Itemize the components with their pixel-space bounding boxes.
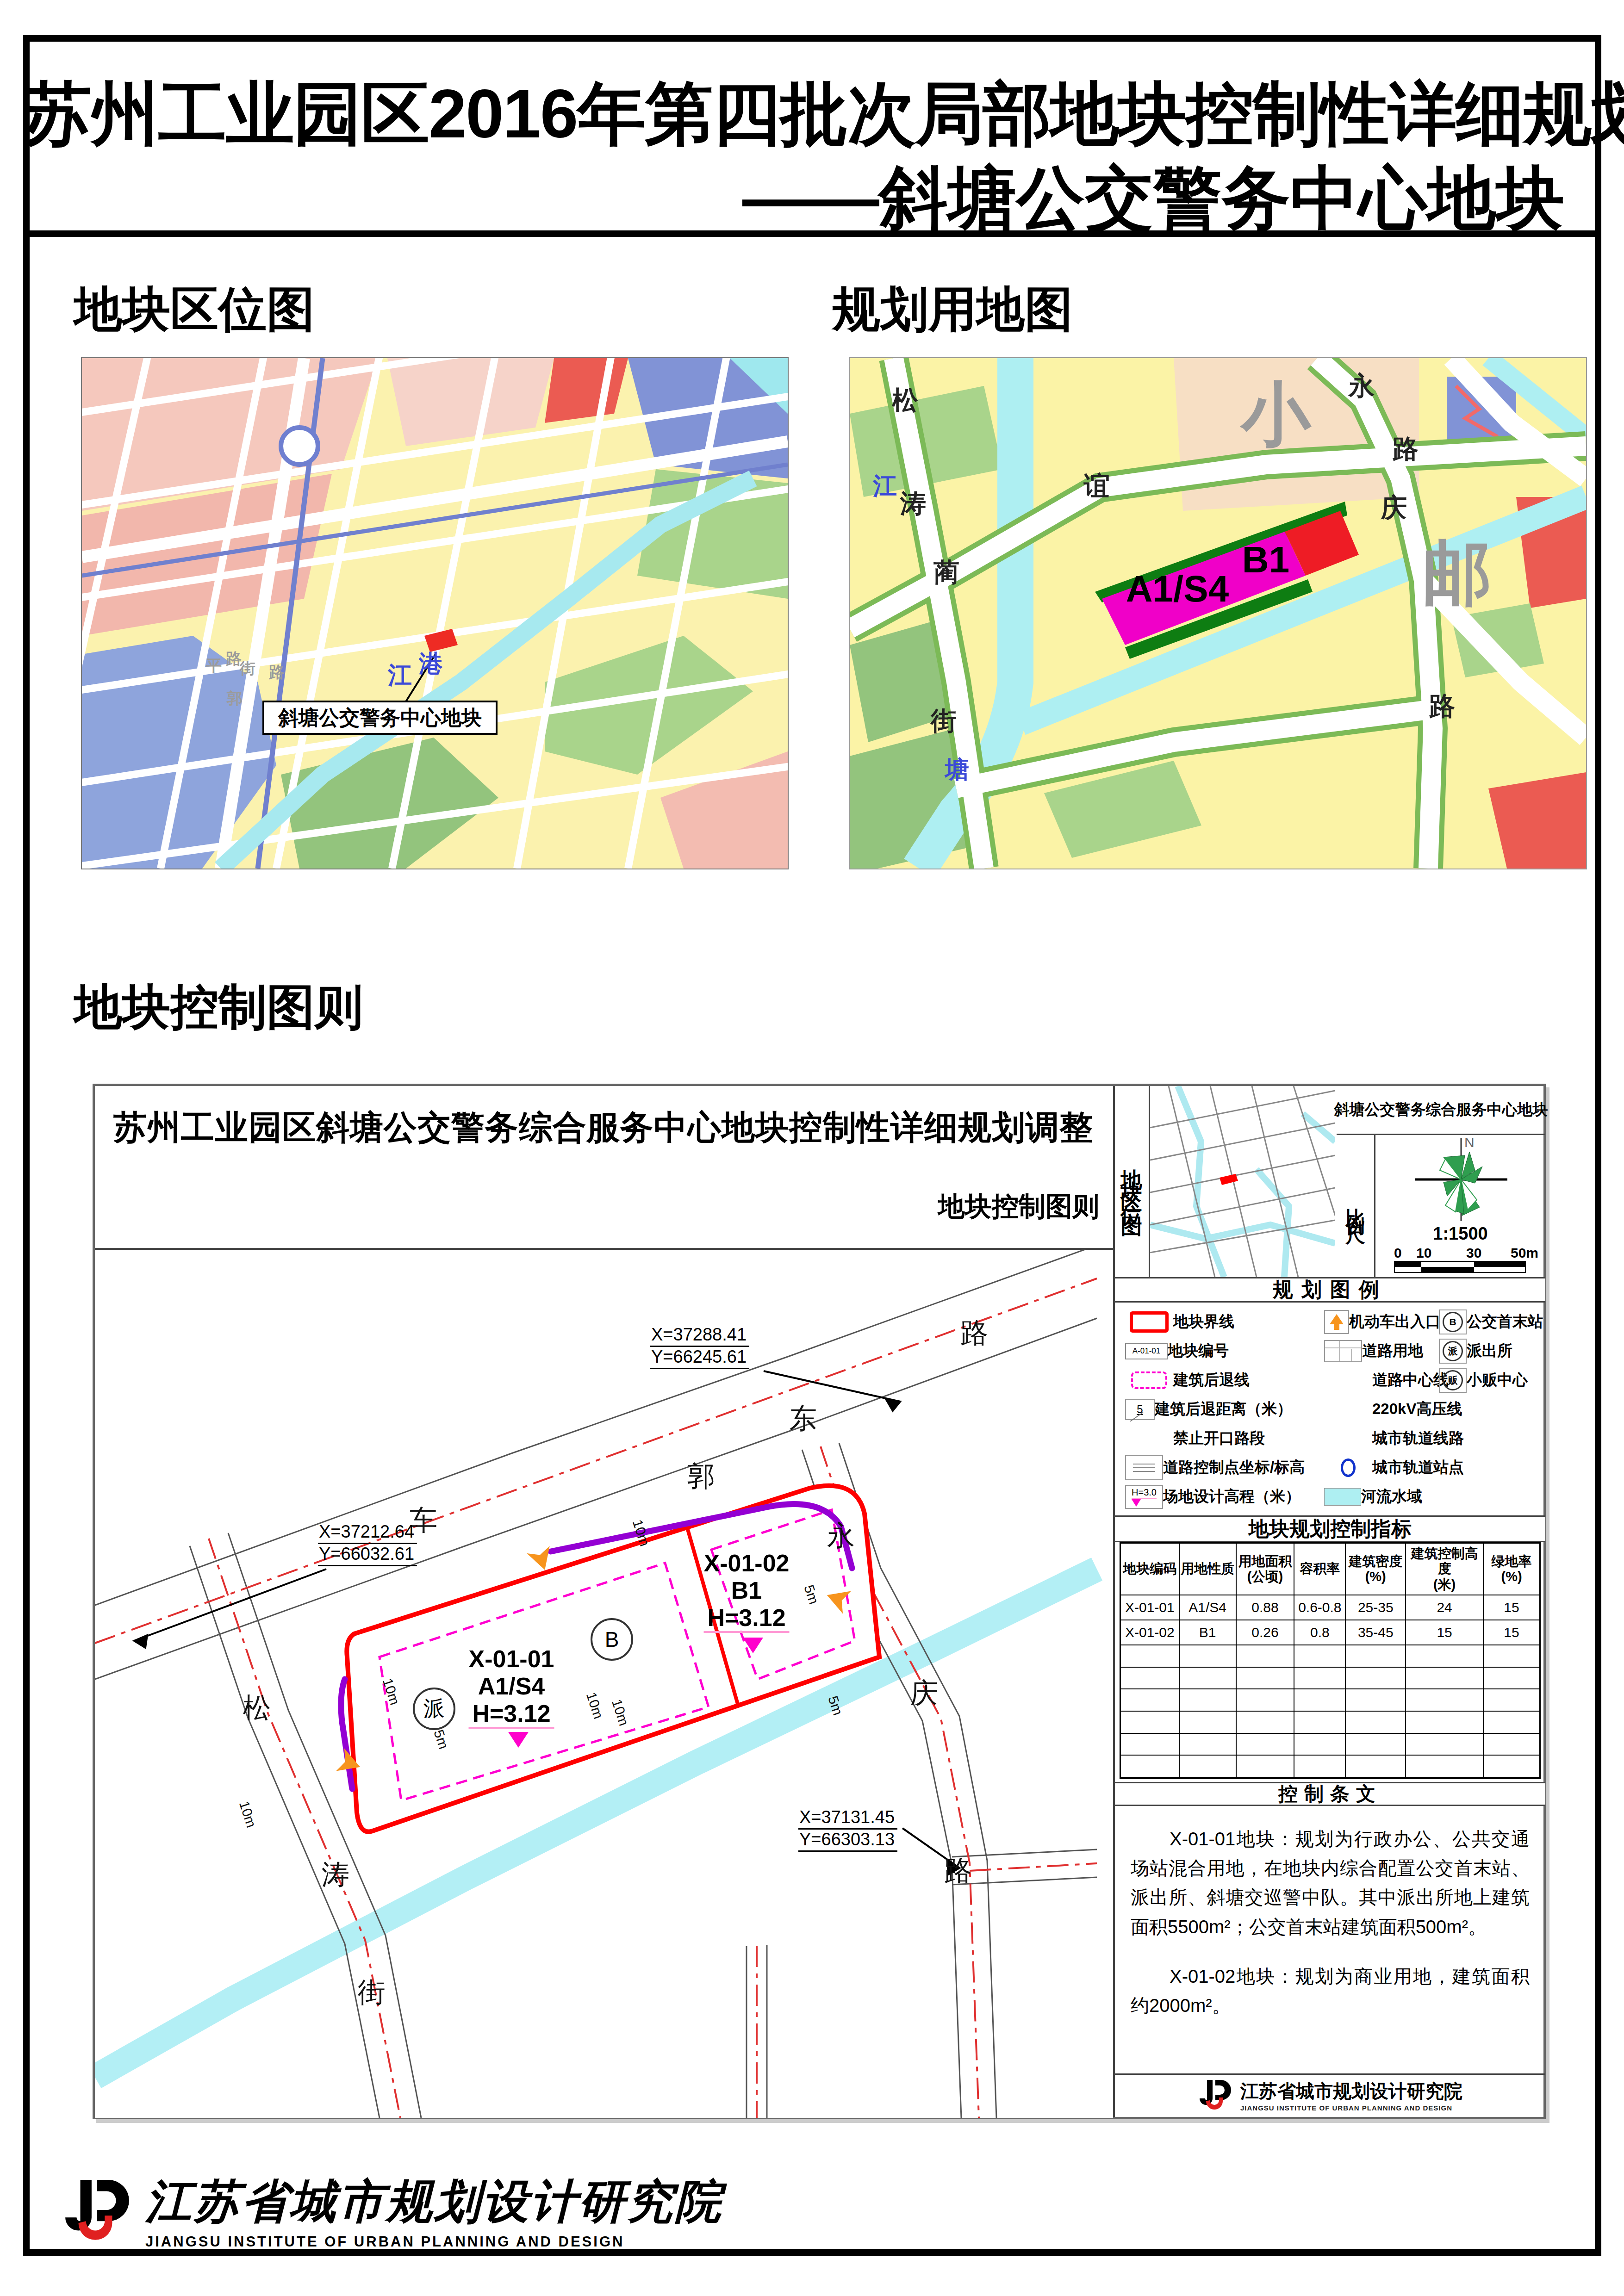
footer-logo-icon <box>59 2176 133 2246</box>
plot2-code: X-01-02 <box>704 1550 790 1577</box>
section-label-landuse-map: 规划用地图 <box>832 278 1073 342</box>
provision-paragraph-1: X-01-01地块：规划为行政办公、公共交通场站混合用地，在地块内综合配置公交首… <box>1131 1824 1530 1942</box>
panel-top-row: 地块区位图 <box>1115 1086 1545 1277</box>
location-map: 平路街路郭江港 斜塘公交警务中心地块 <box>81 357 789 869</box>
legend-item-label: 地块界线 <box>1173 1311 1234 1332</box>
indicators-title: 地块规划控制指标 <box>1115 1515 1545 1542</box>
table-cell: 35-45 <box>1346 1620 1406 1645</box>
map-road-name: 路 <box>226 648 242 670</box>
landuse-label: 小 <box>1241 369 1311 462</box>
legend-item-label: 禁止开口路段 <box>1173 1428 1265 1449</box>
footer-name-cn: 江苏省城市规划设计研究院 <box>145 2171 723 2234</box>
scale-tick: 10 <box>1416 1245 1431 1261</box>
location-callout-label: 斜塘公交警务中心地块 <box>262 701 498 735</box>
drawing-road-name: 郭 <box>687 1458 715 1496</box>
legend-item-label: 地块编号 <box>1168 1340 1229 1361</box>
plot1-height: H=3.12 <box>469 1700 554 1729</box>
table-cell: 15 <box>1406 1620 1484 1645</box>
legend-item-label: 220kV高压线 <box>1372 1399 1462 1420</box>
drawing-road-name: 路 <box>960 1315 988 1352</box>
landuse-label: 街 <box>931 704 957 739</box>
scale-bar <box>1394 1261 1526 1273</box>
legend-symbol-icon <box>1324 1379 1372 1381</box>
legend-item-label: 河流水域 <box>1361 1486 1422 1507</box>
legend-column-3: B 公交首末站 派 派出所 贩 小贩中心 <box>1439 1307 1543 1395</box>
compass-area: N 1:1500 0103050m <box>1375 1135 1545 1277</box>
coord3-x: X=37131.45 <box>798 1807 897 1830</box>
legend-symbol-icon <box>1324 1488 1361 1506</box>
footer-name-en: JIANGSU INSTITUTE OF URBAN PLANNING AND … <box>145 2234 723 2250</box>
map-road-name: 路 <box>269 662 285 683</box>
table-header: 建筑密度 (%) <box>1346 1544 1406 1595</box>
scale-vertical-label: 比例尺 <box>1337 1135 1375 1277</box>
legend-body: 地块界线 A-01-01 地块编号 建筑后退线 5 建筑后退距离（米 <box>1115 1303 1545 1515</box>
legend-item-label: 派出所 <box>1467 1340 1512 1361</box>
legend-item: 5 建筑后退距离（米） <box>1125 1395 1324 1424</box>
map-road-name: 街 <box>240 658 255 679</box>
facility-circle: 派 <box>413 1688 455 1730</box>
svg-text:N: N <box>1464 1135 1475 1150</box>
section-label-location-map: 地块区位图 <box>74 278 315 342</box>
control-chart: 苏州工业园区斜塘公交警务综合服务中心地块控制性详细规划调整 地块控制图则 <box>93 1084 1546 2119</box>
plot2-use: B1 <box>704 1577 790 1604</box>
legend-item-label: 城市轨道线路 <box>1372 1428 1464 1449</box>
table-cell: A1/S4 <box>1180 1595 1237 1620</box>
table-header: 用地面积 (公顷) <box>1237 1544 1295 1595</box>
map-road-name: 港 <box>419 648 443 680</box>
legend-item: H=3.0 场地设计高程（米） <box>1125 1482 1324 1511</box>
chart-title: 苏州工业园区斜塘公交警务综合服务中心地块控制性详细规划调整 <box>113 1105 1104 1150</box>
scale-tick: 30 <box>1466 1245 1481 1261</box>
coord2-x: X=37212.64 <box>318 1522 417 1544</box>
legend-item: 贩 小贩中心 <box>1439 1365 1543 1395</box>
legend-item-label: 场地设计高程（米） <box>1163 1486 1300 1507</box>
landuse-label: 永 <box>1349 369 1375 404</box>
provision-paragraph-2: X-01-02地块：规划为商业用地，建筑面积约2000m²。 <box>1131 1962 1530 2020</box>
legend-item: B 公交首末站 <box>1439 1307 1543 1336</box>
panel-title-scale-cell: 斜塘公交警务综合服务中心地块 比例尺 <box>1337 1086 1545 1277</box>
table-cell: 0.6-0.8 <box>1294 1595 1346 1620</box>
legend-item: 道路控制点坐标/标高 <box>1125 1453 1324 1482</box>
provisions-title: 控制条文 <box>1115 1782 1545 1806</box>
title-divider <box>23 230 1601 237</box>
plot2-height: H=3.12 <box>704 1604 790 1633</box>
drawing-road-name: 永 <box>827 1517 855 1555</box>
coord1-y: Y=66245.61 <box>650 1347 749 1369</box>
legend-item-label: 机动车出入口 <box>1349 1311 1441 1332</box>
location-map-graphic <box>82 358 788 869</box>
legend-item-label: 建筑后退线 <box>1173 1370 1250 1390</box>
indicators-table: 地块编码 用地性质 用地面积 (公顷) 容积率 建筑密度 (%) 建筑控制高度 … <box>1120 1542 1541 1779</box>
map-road-name: 平 <box>206 655 222 676</box>
plot1-code: X-01-01 <box>469 1645 554 1673</box>
legend-item-label: 小贩中心 <box>1467 1370 1528 1390</box>
institute-name-en: JIANGSU INSTITUTE OF URBAN PLANNING AND … <box>1240 2104 1462 2112</box>
drawing-road-name: 路 <box>944 1852 972 1890</box>
legend-symbol-icon <box>1324 1437 1372 1440</box>
legend-item-label: 道路用地 <box>1362 1340 1423 1361</box>
legend-item-label: 建筑后退距离（米） <box>1155 1399 1292 1420</box>
landuse-label: 蔺 <box>933 555 959 590</box>
table-header: 容积率 <box>1294 1544 1346 1595</box>
landuse-label: A1/S4 <box>1126 568 1229 610</box>
legend-item: 禁止开口路段 <box>1125 1424 1324 1453</box>
legend-symbol-icon <box>1324 1408 1372 1410</box>
legend-item: 城市轨道站点 <box>1324 1453 1463 1482</box>
legend-symbol-icon <box>1125 1371 1173 1389</box>
table-cell: 15 <box>1484 1595 1539 1620</box>
facility-circle: B <box>591 1618 633 1661</box>
legend-symbol-icon <box>1125 1455 1163 1480</box>
legend-symbol-icon: 5 <box>1125 1399 1155 1420</box>
scale-tick: 0 <box>1394 1245 1402 1261</box>
section-label-control-plan: 地块控制图则 <box>74 975 363 1040</box>
legend-symbol-icon <box>1125 1311 1173 1333</box>
table-cell: 0.26 <box>1237 1620 1295 1645</box>
institute-logo-icon <box>1198 2078 1232 2112</box>
landuse-label: 涛 <box>900 486 926 521</box>
landuse-label: 邮 <box>1422 527 1492 621</box>
legend-item: A-01-01 地块编号 <box>1125 1336 1324 1365</box>
site-plan-drawing: 车郭东路松涛街永庆路 10m5m10m10m5m10m5m10m B派 X-01… <box>95 1248 1113 2118</box>
scale-ticks: 0103050m <box>1394 1245 1533 1259</box>
legend-symbol-icon: 派 <box>1439 1339 1467 1364</box>
location-map-vertical-label: 地块区位图 <box>1115 1086 1150 1277</box>
drawing-road-name: 东 <box>789 1400 817 1438</box>
road-control-point-2: X=37212.64 Y=66032.61 <box>318 1522 417 1566</box>
coord2-y: Y=66032.61 <box>318 1544 417 1566</box>
table-cell: X-01-01 <box>1121 1595 1180 1620</box>
site-plan-graphic <box>95 1250 1113 2118</box>
legend-item-label: 道路中心线 <box>1372 1370 1449 1390</box>
table-header: 建筑控制高度 (米) <box>1406 1544 1484 1595</box>
elevation-marker-plot1 <box>508 1732 529 1748</box>
plot2-label: X-01-02 B1 H=3.12 <box>704 1550 790 1633</box>
legend-header: 规划图例 <box>1115 1277 1545 1303</box>
coord3-y: Y=66303.13 <box>798 1830 897 1852</box>
legend-item: 建筑后退线 <box>1125 1365 1324 1395</box>
legend-item: 城市轨道线路 <box>1324 1424 1463 1453</box>
panel-minimap <box>1150 1086 1335 1277</box>
legend-symbol-icon <box>1324 1340 1362 1362</box>
legend-symbol-icon: 贩 <box>1439 1368 1467 1393</box>
legend-symbol-icon <box>1324 1310 1349 1334</box>
north-compass-icon: N <box>1403 1135 1519 1224</box>
legend-column-1: 地块界线 A-01-01 地块编号 建筑后退线 5 建筑后退距离（米 <box>1125 1307 1324 1511</box>
elevation-marker-plot2 <box>743 1638 763 1653</box>
footer-institute: 江苏省城市规划设计研究院 JIANGSU INSTITUTE OF URBAN … <box>59 2171 723 2250</box>
landuse-label: 江 <box>873 470 897 503</box>
landuse-label: 塘 <box>945 754 969 786</box>
table-header: 用地性质 <box>1180 1544 1237 1595</box>
scale-tick: 50m <box>1511 1245 1538 1261</box>
legend-item: 河流水域 <box>1324 1482 1463 1511</box>
table-cell: 25-35 <box>1346 1595 1406 1620</box>
landuse-label: 路 <box>1393 432 1419 467</box>
legend-symbol-icon: H=3.0 <box>1125 1485 1163 1509</box>
scale-ratio: 1:1500 <box>1375 1224 1545 1244</box>
legend-item: 派 派出所 <box>1439 1336 1543 1365</box>
map-road-name: 郭 <box>227 688 243 709</box>
landuse-map: 松江涛蔺街塘谊小永路庆邮路A1/S4B1 <box>849 357 1587 869</box>
table-cell: B1 <box>1180 1620 1237 1645</box>
institute-name-cn: 江苏省城市规划设计研究院 <box>1240 2079 1462 2104</box>
table-header: 地块编码 <box>1121 1544 1180 1595</box>
drawing-road-name: 松 <box>243 1689 271 1727</box>
legend-item-label: 公交首末站 <box>1467 1311 1543 1332</box>
landuse-label: B1 <box>1242 539 1289 581</box>
plot1-use: A1/S4 <box>469 1673 554 1700</box>
coord1-x: X=37288.41 <box>650 1325 749 1347</box>
provisions-text: X-01-01地块：规划为行政办公、公共交通场站混合用地，在地块内综合配置公交首… <box>1115 1806 1545 2073</box>
landuse-label: 庆 <box>1381 490 1407 526</box>
chart-subtitle: 地块控制图则 <box>113 1189 1099 1225</box>
table-cell: 0.8 <box>1294 1620 1346 1645</box>
info-panel: 地块区位图 <box>1113 1086 1543 2117</box>
landuse-label: 松 <box>892 383 918 418</box>
panel-block-title: 斜塘公交警务综合服务中心地块 <box>1337 1086 1545 1135</box>
legend-item: 220kV高压线 <box>1324 1395 1463 1424</box>
table-cell: 24 <box>1406 1595 1484 1620</box>
table-header: 绿地率 (%) <box>1484 1544 1539 1595</box>
drawing-road-name: 涛 <box>322 1856 349 1893</box>
page-title-line1: 苏州工业园区2016年第四批次局部地块控制性详细规划（规划公示） <box>23 68 1601 161</box>
institute-band: 江苏省城市规划设计研究院 JIANGSU INSTITUTE OF URBAN … <box>1115 2073 1545 2115</box>
legend-item-label: 城市轨道站点 <box>1372 1457 1464 1478</box>
legend-symbol-icon <box>1125 1436 1173 1440</box>
table-cell: 0.88 <box>1237 1595 1295 1620</box>
map-road-name: 江 <box>388 659 412 692</box>
landuse-label: 谊 <box>1084 469 1110 504</box>
legend-symbol-icon <box>1324 1458 1372 1477</box>
landuse-label: 路 <box>1429 689 1455 724</box>
legend-item: 地块界线 <box>1125 1307 1324 1336</box>
legend-symbol-icon: B <box>1439 1309 1467 1334</box>
table-cell: 15 <box>1484 1620 1539 1645</box>
drawing-road-name: 庆 <box>910 1675 938 1712</box>
road-control-point-3: X=37131.45 Y=66303.13 <box>798 1807 897 1852</box>
drawing-road-name: 街 <box>358 1974 386 2011</box>
legend-item-label: 道路控制点坐标/标高 <box>1163 1457 1305 1478</box>
minimap-graphic <box>1150 1086 1335 1277</box>
plot1-label: X-01-01 A1/S4 H=3.12 <box>469 1645 554 1729</box>
table-cell: X-01-02 <box>1121 1620 1180 1645</box>
road-control-point-1: X=37288.41 Y=66245.61 <box>650 1325 749 1369</box>
legend-symbol-icon: A-01-01 <box>1125 1343 1168 1359</box>
